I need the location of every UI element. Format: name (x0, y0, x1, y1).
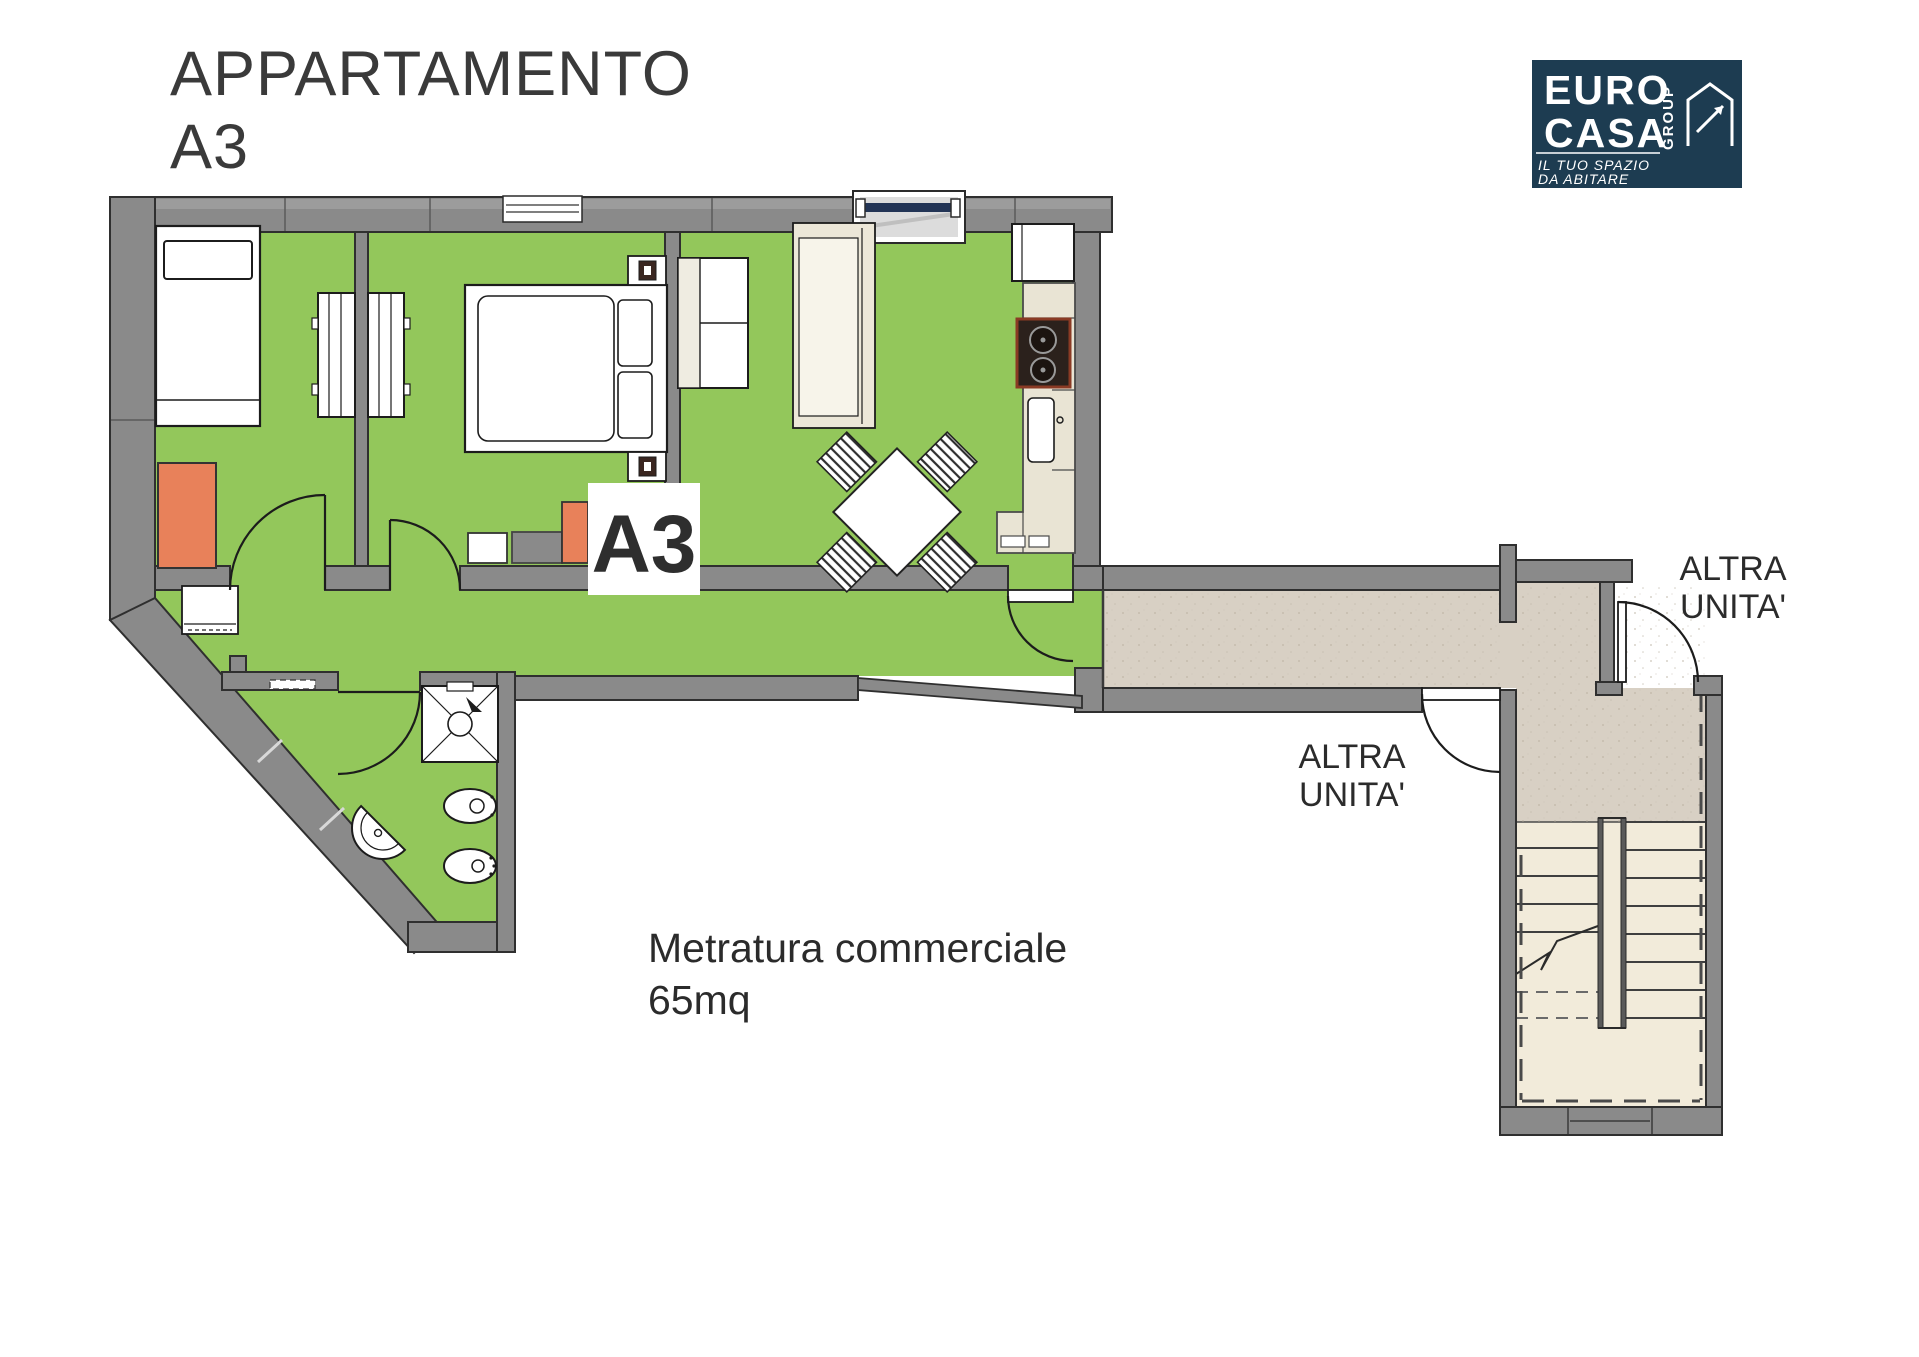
door-other-unit-mid (1422, 688, 1500, 772)
toilet (444, 789, 496, 823)
wall-bottom-exterior (515, 676, 858, 700)
stove (1017, 319, 1070, 387)
shower-mixer (447, 682, 473, 691)
wall-stairwell-right (1706, 695, 1722, 1135)
logo-name-line2: CASA (1544, 110, 1668, 156)
counter-detail (1001, 536, 1025, 547)
counter-detail (1029, 536, 1049, 547)
dresser-white (468, 533, 507, 563)
corridor-texture (1103, 590, 1500, 688)
svg-text:UNITA': UNITA' (1680, 588, 1786, 626)
window-sill-bar (864, 203, 956, 212)
hallway-floor (155, 590, 1103, 676)
wall-stub (1073, 566, 1103, 590)
bed-pillow (164, 241, 252, 279)
floor-plan-page: APPARTAMENTO A3 A3 ALTRA UNITA' ALTRA UN… (0, 0, 1919, 1357)
double-bed (465, 285, 667, 452)
wardrobe-bedroom1 (312, 293, 355, 417)
wall-pillar (1500, 545, 1516, 622)
shower-drain (448, 712, 472, 736)
area-note: Metratura commerciale 65mq (648, 925, 1067, 1023)
area-note-line2: 65mq (648, 977, 751, 1023)
nightstand-bottom (628, 452, 666, 481)
wall-bathroom-right (497, 672, 515, 952)
page-title-line1: APPARTAMENTO (170, 39, 692, 109)
dresser-orange (562, 502, 588, 563)
door-leaf (858, 678, 1082, 708)
wall-vent-grille (270, 680, 315, 689)
wall-corridor-top (1103, 566, 1500, 590)
sofa-backrest (678, 258, 700, 388)
svg-text:ALTRA: ALTRA (1679, 550, 1786, 588)
wall-living-right (1073, 232, 1100, 566)
logo: EURO CASA GROUP IL TUO SPAZIO DA ABITARE (1532, 60, 1742, 188)
bed-pillow (618, 300, 652, 366)
floor-plan-drawing: APPARTAMENTO A3 A3 ALTRA UNITA' ALTRA UN… (0, 0, 1919, 1357)
desk-orange (158, 463, 216, 568)
door-gap-bedroom2 (390, 566, 460, 590)
wall-stairwell-left (1500, 690, 1516, 1135)
page-title-line2: A3 (170, 112, 249, 182)
mattress (478, 296, 614, 441)
wall-corridor-bottom (1103, 688, 1422, 712)
svg-text:UNITA': UNITA' (1299, 776, 1405, 814)
other-unit-label-top: ALTRA UNITA' (1679, 550, 1786, 626)
door-gap-bathroom (338, 670, 420, 680)
door-leaf (1618, 602, 1626, 682)
sofa (678, 258, 748, 388)
other-unit-label-mid: ALTRA UNITA' (1298, 738, 1405, 814)
a3-label-text: A3 (592, 499, 697, 590)
logo-group-vertical: GROUP (1660, 85, 1677, 150)
door-leaf (1008, 590, 1073, 602)
dresser-gray (512, 532, 562, 563)
door-gap-bedroom1 (230, 566, 325, 590)
wall-rooms-bottom (325, 566, 390, 590)
wall-stub (230, 656, 246, 672)
wall-landing-top (1516, 560, 1632, 582)
bidet (444, 849, 496, 883)
shower (422, 682, 498, 762)
radiator (182, 586, 238, 634)
logo-name-line1: EURO (1544, 67, 1670, 113)
wardrobe-bedroom2 (368, 293, 410, 417)
a3-label: A3 (588, 483, 700, 595)
entrance-door (858, 678, 1082, 708)
door-arc (1422, 694, 1500, 772)
window-bedroom2 (503, 196, 582, 222)
wall-left (110, 197, 155, 620)
sideboard (793, 223, 875, 428)
nightstand-top (628, 256, 666, 285)
wall-cap (1596, 682, 1622, 695)
corridor-passage (1500, 622, 1516, 688)
bed-pillow (618, 372, 652, 438)
door-leaf (1422, 688, 1500, 700)
fridge (1012, 224, 1074, 281)
wall-landing-return (1600, 582, 1614, 695)
logo-tagline-line2: DA ABITARE (1538, 171, 1629, 187)
wall-bedroom-divider (355, 232, 368, 566)
area-note-line1: Metratura commerciale (648, 925, 1067, 971)
svg-text:ALTRA: ALTRA (1298, 738, 1405, 776)
door-gap-living (1008, 566, 1073, 590)
